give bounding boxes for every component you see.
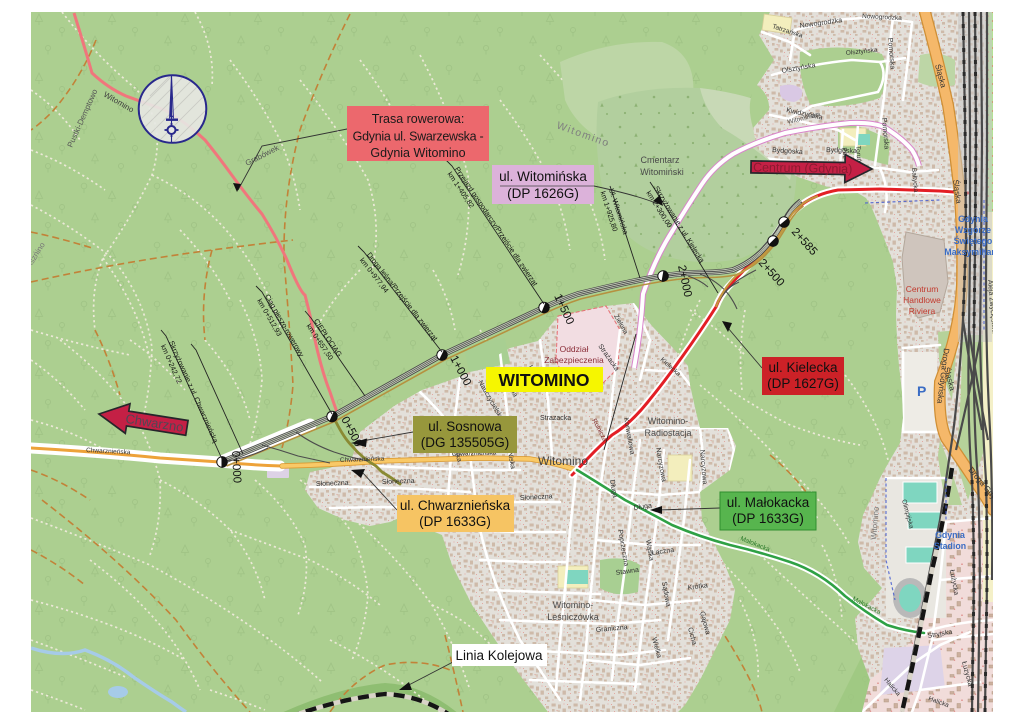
- svg-text:Witomiński: Witomiński: [640, 167, 684, 177]
- svg-text:ul. Małokacka: ul. Małokacka: [727, 495, 810, 510]
- svg-text:Gdynia ul. Swarzewska -: Gdynia ul. Swarzewska -: [353, 130, 484, 144]
- svg-text:Witomino-: Witomino-: [648, 416, 689, 426]
- svg-text:Trasa rowerowa:: Trasa rowerowa:: [372, 112, 465, 126]
- svg-text:Handlowe: Handlowe: [903, 295, 941, 305]
- svg-text:Strazacka: Strazacka: [540, 415, 571, 422]
- svg-text:Zabezpieczenia: Zabezpieczenia: [544, 355, 604, 365]
- svg-text:Gdynia: Gdynia: [935, 530, 965, 540]
- svg-text:Wzgórze: Wzgórze: [955, 225, 991, 235]
- svg-text:Stadion: Stadion: [934, 541, 966, 551]
- svg-text:(DG 135505G): (DG 135505G): [421, 435, 510, 450]
- svg-text:Linia Kolejowa: Linia Kolejowa: [455, 648, 543, 663]
- svg-text:0+000: 0+000: [229, 451, 243, 484]
- svg-text:Słoneczna: Słoneczna: [382, 478, 415, 486]
- svg-text:(DP 1626G): (DP 1626G): [507, 186, 579, 201]
- svg-text:Witomino-: Witomino-: [553, 600, 594, 610]
- svg-text:Świętego: Świętego: [954, 235, 993, 246]
- svg-text:Witomino: Witomino: [538, 454, 588, 468]
- svg-text:Centrum: Centrum: [906, 284, 939, 294]
- svg-text:Gdynia Witomino: Gdynia Witomino: [370, 146, 465, 160]
- svg-text:Słoneczna: Słoneczna: [316, 480, 349, 488]
- svg-text:Centrum (Gdynia): Centrum (Gdynia): [753, 160, 853, 176]
- svg-text:WITOMINO: WITOMINO: [498, 370, 589, 390]
- svg-text:(DP 1627G): (DP 1627G): [767, 376, 839, 391]
- svg-text:Riviera: Riviera: [909, 306, 936, 316]
- svg-text:Radiostacja: Radiostacja: [644, 428, 691, 438]
- svg-text:Gdynia: Gdynia: [958, 214, 988, 224]
- svg-text:(DP 1633G): (DP 1633G): [732, 511, 804, 526]
- svg-text:Leśniczówka: Leśniczówka: [547, 612, 599, 622]
- svg-text:ul. Kielecka: ul. Kielecka: [768, 360, 838, 375]
- svg-text:ul. Witomińska: ul. Witomińska: [499, 169, 587, 184]
- svg-text:Cmentarz: Cmentarz: [640, 155, 680, 165]
- svg-text:ul. Chwarznieńska: ul. Chwarznieńska: [400, 498, 511, 513]
- svg-text:P: P: [917, 383, 926, 399]
- svg-text:ul. Sosnowa: ul. Sosnowa: [428, 419, 502, 434]
- svg-text:(DP 1633G): (DP 1633G): [419, 514, 491, 529]
- svg-text:Oddział: Oddział: [560, 344, 589, 354]
